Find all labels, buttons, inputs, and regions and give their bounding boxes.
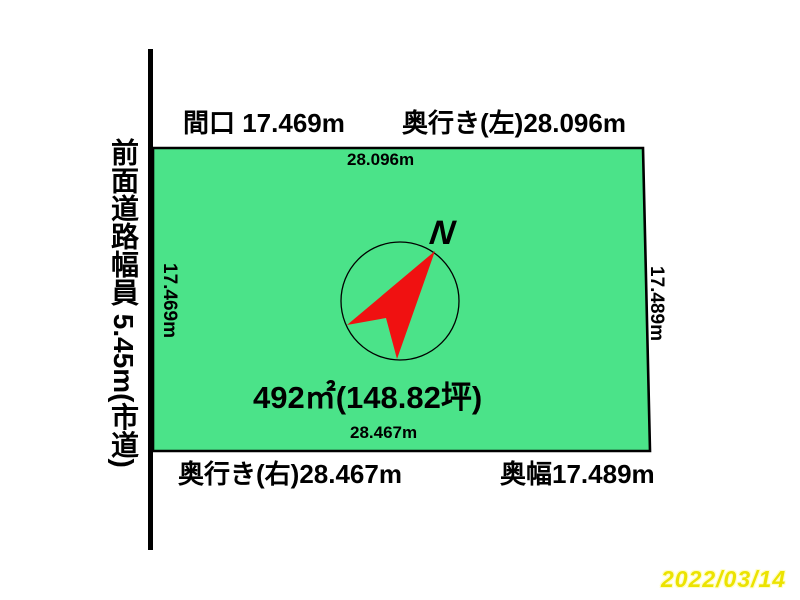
area-label: 492㎡(148.82坪) [253,382,482,413]
right-edge-measurement: 17.489m [647,266,666,341]
compass-north-letter: N [428,216,457,250]
date-stamp: 2022/03/14 [661,568,786,591]
depth-right-label: 奥行き(右)28.467m [178,461,402,487]
road-width-label: 前面道路幅員 5.45m(市道) [109,138,137,468]
back-width-label: 奥幅17.489m [500,461,655,487]
frontage-label: 間口 17.469m [183,110,345,136]
land-plot-diagram: { "colors": { "plot_fill": "#4be389", "o… [0,0,800,600]
top-edge-measurement: 28.096m [347,151,414,168]
left-edge-measurement: 17.469m [160,263,179,338]
depth-left-label: 奥行き(左)28.096m [402,110,626,136]
bottom-edge-measurement: 28.467m [350,424,417,441]
